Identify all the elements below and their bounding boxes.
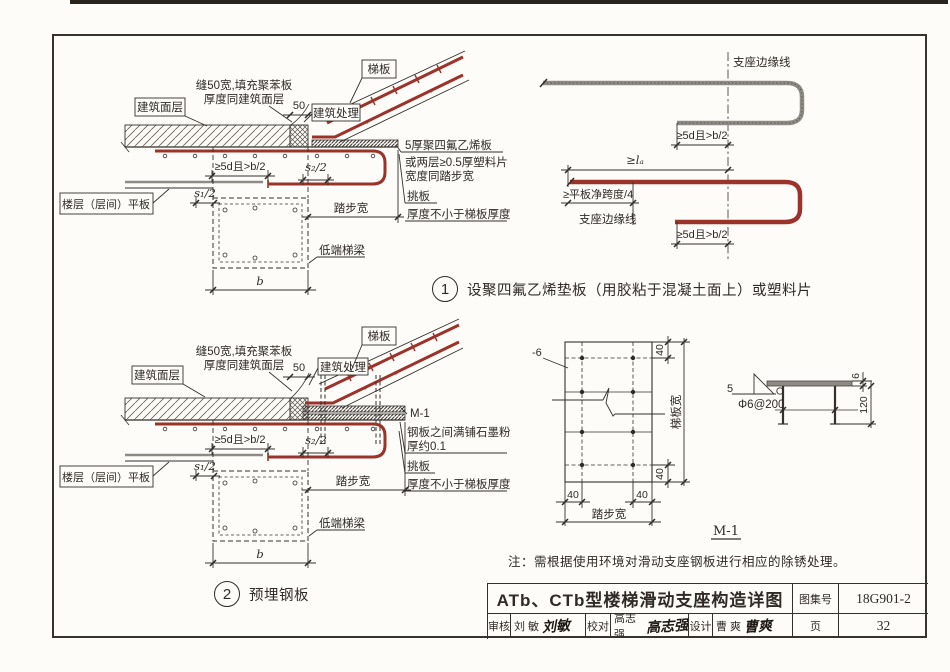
stud-dots	[580, 356, 635, 467]
detail-1-number-badge: 1	[432, 276, 458, 302]
anchor-dim-label: ≥5d且>b/2	[215, 161, 266, 173]
sheet-title: ATb、CTb型楼梯滑动支座构造详图	[488, 584, 793, 613]
designer-name: 曹 爽	[716, 618, 741, 634]
thickness-note-label: 厚度不小于梯板厚度	[407, 477, 511, 491]
plate-section	[767, 381, 852, 386]
slab-width-label: 梯板宽	[669, 394, 683, 429]
floor-slab-label: 楼层（层间）平板	[62, 470, 150, 484]
b-dim-label: b	[256, 547, 263, 561]
proofreader-signature: 高志强	[645, 614, 688, 637]
designer-signature: 曹爽	[743, 615, 772, 637]
stud-spec-label: Φ6@200	[738, 399, 784, 411]
stud-length-dim: 120	[858, 396, 870, 414]
ptfe-label-2: 或两层≥0.5厚塑料片	[405, 155, 508, 169]
reviewer-label: 审核	[488, 614, 511, 638]
page-number: 32	[839, 614, 928, 638]
studs	[775, 386, 858, 424]
distribution-bars	[163, 427, 375, 431]
m1plan-dimensions: 40 40 梯板宽 40 40 踏步宽	[556, 336, 690, 526]
m1-title-label: M-1	[713, 524, 739, 539]
detail-2-caption: 2 预埋钢板	[214, 581, 309, 607]
anchorage-plan-drawing: 支座边缘线 ≥5d且>b/2 ≥lₐ ≥平板净跨度/4 支座边缘线 ≥5d且>b…	[535, 42, 935, 267]
seam-label-1: 缝50宽,填充聚苯板	[196, 344, 293, 358]
s2-dim-label: s₂/2	[305, 433, 327, 447]
seam-label-2: 厚度同建筑面层	[204, 358, 285, 372]
proofreader-name: 高志强	[614, 614, 643, 638]
b-dim-label: b	[256, 274, 263, 288]
atlas-number-label: 图集号	[793, 584, 839, 613]
reviewer-name: 刘 敏	[514, 618, 539, 634]
upper-rebar-gray	[543, 83, 802, 123]
detail-2-drawing: ≥5d且>b/2 s₂/2 s₁/2 踏步宽 b 50 建筑面层 缝50宽,填充…	[55, 315, 525, 580]
dim-40-top-right: 40	[654, 344, 666, 356]
ptfe-label-3: 宽度同踏步宽	[405, 169, 474, 183]
designer-label: 设计	[689, 614, 713, 638]
tread-dim-label: 踏步宽	[336, 474, 371, 488]
detail2-callouts: 建筑面层 缝50宽,填充聚苯板 厚度同建筑面层 建筑处理 梯板 楼层（层间）平板…	[60, 327, 511, 536]
title-block: ATb、CTb型楼梯滑动支座构造详图 图集号 18G901-2 审核 刘 敏 刘…	[487, 583, 928, 639]
arch-treat-label: 建筑处理	[320, 360, 366, 374]
ptfe-label-1: 5厚聚四氟乙烯板	[405, 138, 492, 152]
dim-40-bottom-right: 40	[654, 468, 666, 480]
s1-dim-label: s₁/2	[194, 459, 216, 473]
finish-label: 建筑面层	[134, 368, 180, 382]
anchor-top-label: ≥5d且>b/2	[677, 130, 728, 142]
scan-edge-strip	[70, 0, 948, 4]
dim-40-bottom-left: 40	[567, 489, 579, 501]
floor-slab-label: 楼层（层间）平板	[62, 197, 150, 211]
plate-outline	[565, 342, 652, 482]
stud-section-drawing: 5 Φ6@200 6 120	[720, 360, 930, 445]
detail1-callouts: 建筑面层 缝50宽,填充聚苯板 厚度同建筑面层 建筑处理 梯板 楼层（层间）平板…	[60, 60, 511, 263]
cantilever-label: 挑板	[407, 189, 430, 203]
page-label: 页	[793, 614, 839, 638]
quarter-span-label: ≥平板净跨度/4	[563, 187, 633, 201]
footnote: 注：需根据使用环境对滑动支座钢板进行相应的除锈处理。	[508, 551, 846, 570]
beam-label: 低端梯梁	[319, 243, 365, 257]
cantilever-label: 挑板	[407, 459, 430, 473]
proofreader-label: 校对	[586, 614, 611, 638]
lower-plate-strip	[303, 414, 405, 420]
upper-plate-strip	[303, 406, 405, 412]
arch-treat-label: 建筑处理	[313, 106, 359, 120]
joint-50-label: 50	[293, 362, 305, 374]
stair-slab-label: 梯板	[368, 329, 391, 343]
beam-label: 低端梯梁	[319, 516, 365, 530]
ptfe-pad-strip	[312, 140, 398, 147]
weld-size-label: 5	[727, 383, 733, 395]
detail-1-caption: 1 设聚四氟乙烯垫板（用胶粘于混凝土面上）或塑料片	[432, 276, 812, 302]
graphite-label-1: 钢板之间满铺石墨粉	[407, 425, 511, 439]
detail-1-caption-text: 设聚四氟乙烯垫板（用胶粘于混凝土面上）或塑料片	[467, 278, 812, 300]
tread-dim-label: 踏步宽	[334, 201, 369, 215]
s2-dim-label: s₂/2	[305, 160, 327, 174]
anchor-dim-label: ≥5d且>b/2	[215, 434, 266, 446]
atlas-number-value: 18G901-2	[839, 584, 928, 613]
detail2-dimensions: ≥5d且>b/2 s₂/2 s₁/2 踏步宽 b 50	[190, 362, 411, 568]
dim-40-bottom-mid: 40	[636, 489, 648, 501]
detail-2-number-badge: 2	[214, 581, 240, 607]
joint-50-label: 50	[293, 100, 305, 112]
s1-dim-label: s₁/2	[194, 186, 216, 200]
support-edge-top-label: 支座边缘线	[733, 55, 791, 69]
detail-1-drawing: ≥5d且>b/2 s₂/2 s₁/2 踏步宽 b 50 建筑面层 缝50宽,填充…	[55, 42, 525, 304]
support-edge-bottom-label: 支座边缘线	[579, 212, 637, 226]
reviewer-cell: 刘 敏 刘敏	[511, 614, 586, 638]
seam-label-2: 厚度同建筑面层	[204, 92, 285, 106]
stair-slab-label: 梯板	[368, 62, 391, 76]
plate-thickness-label: -6	[532, 347, 542, 359]
plate-thickness-dim: 6	[850, 373, 862, 379]
graphite-label-2: 厚约0.1	[407, 439, 446, 453]
detail-2-caption-text: 预埋钢板	[249, 583, 309, 605]
section-dimensions: 6 120	[840, 372, 876, 428]
finish-label: 建筑面层	[137, 100, 183, 114]
slab-rebar-hook	[155, 151, 385, 184]
la-dim-label: ≥lₐ	[626, 153, 644, 167]
m1-label: M-1	[410, 408, 430, 420]
anchor-bottom-label: ≥5d且>b/2	[677, 229, 728, 241]
slab-rebar-hook	[155, 424, 385, 457]
proofreader-cell: 高志强 高志强	[611, 614, 689, 638]
tread-width-label: 踏步宽	[592, 507, 627, 521]
distribution-bars	[163, 154, 375, 158]
designer-cell: 曹 爽 曹爽	[713, 614, 793, 638]
seam-label-1: 缝50宽,填充聚苯板	[196, 78, 293, 92]
thickness-note-label: 厚度不小于梯板厚度	[407, 207, 511, 221]
reviewer-signature: 刘敏	[541, 615, 570, 637]
